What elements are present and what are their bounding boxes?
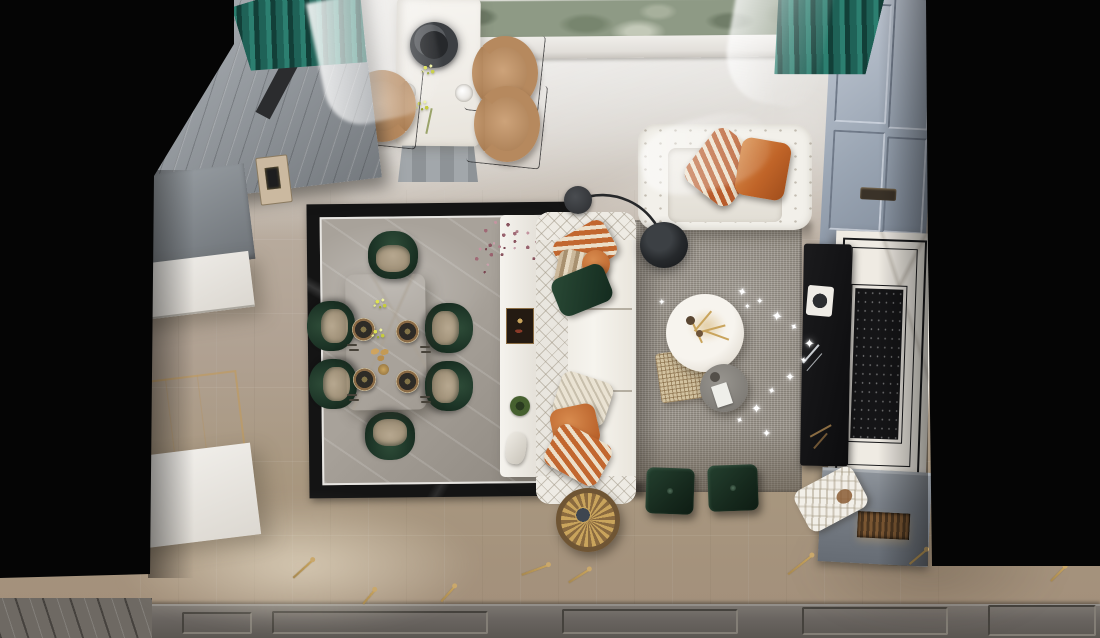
decor-tray	[506, 308, 534, 344]
cutlery	[420, 396, 430, 398]
sparkle-icon: ✦	[751, 403, 762, 416]
sparkle-icon: ✦	[804, 338, 815, 351]
dining-chair	[368, 231, 418, 279]
console-decor-box	[806, 285, 835, 317]
brass-side-table	[556, 488, 620, 552]
ottoman	[645, 467, 695, 515]
breakfast-chair	[474, 86, 540, 162]
cutlery	[421, 401, 431, 403]
chair-seat	[432, 369, 459, 403]
dining-chair	[365, 412, 415, 460]
sparkle-icon: ✦	[762, 428, 771, 439]
chair-seat	[321, 309, 348, 343]
decor-berry	[686, 316, 695, 325]
chair-seat	[432, 311, 459, 345]
sparkle-icon: ✦	[770, 309, 784, 325]
sparkle-icon: ✦	[756, 298, 764, 307]
panel	[562, 609, 738, 634]
cutlery	[347, 344, 357, 346]
cutlery	[349, 399, 359, 401]
decor-item	[710, 372, 720, 382]
blanket-detail	[834, 486, 855, 506]
dining-chair	[425, 361, 473, 411]
console-gold-stick	[813, 433, 828, 449]
coffee-table	[666, 294, 744, 372]
decor-berry	[696, 330, 703, 337]
sparkle-icon: ✦	[785, 371, 795, 383]
place-setting	[396, 320, 419, 343]
sparkle-icon: ✦	[744, 303, 751, 311]
table-flowers	[372, 296, 390, 312]
brass-dish	[378, 364, 389, 375]
right-edge-shadow	[878, 0, 928, 566]
lamp-shade	[640, 222, 688, 268]
scene-stage: ✦ ✦ ✦ ✦ ✦ ✦ ✦ ✦ ✦ ✦ ✦ ✦ ✦	[0, 0, 1100, 638]
chair-legs	[466, 78, 548, 169]
decor-card	[711, 382, 733, 408]
fireplace-console	[800, 244, 852, 467]
intercom-screen	[264, 166, 281, 190]
cutlery	[349, 349, 359, 351]
chair-seat	[373, 419, 407, 446]
chair-seat	[376, 245, 410, 272]
lamp-base	[564, 186, 592, 214]
ottoman	[707, 464, 759, 512]
side-table-gray	[700, 364, 748, 412]
left-edge-shadow	[148, 170, 194, 578]
place-setting	[353, 368, 376, 391]
dining-chair	[425, 303, 473, 353]
cutlery	[420, 346, 430, 348]
cutlery	[347, 394, 357, 396]
brass-table-center	[575, 507, 591, 523]
sparkle-icon: ✦	[658, 299, 666, 308]
cutlery	[421, 351, 431, 353]
console-gold-stick	[810, 424, 832, 437]
intercom-panel	[255, 154, 293, 206]
decor-dish	[510, 396, 530, 416]
place-setting	[396, 370, 419, 393]
cabinet-panel	[828, 130, 885, 233]
table-flowers	[370, 326, 388, 342]
